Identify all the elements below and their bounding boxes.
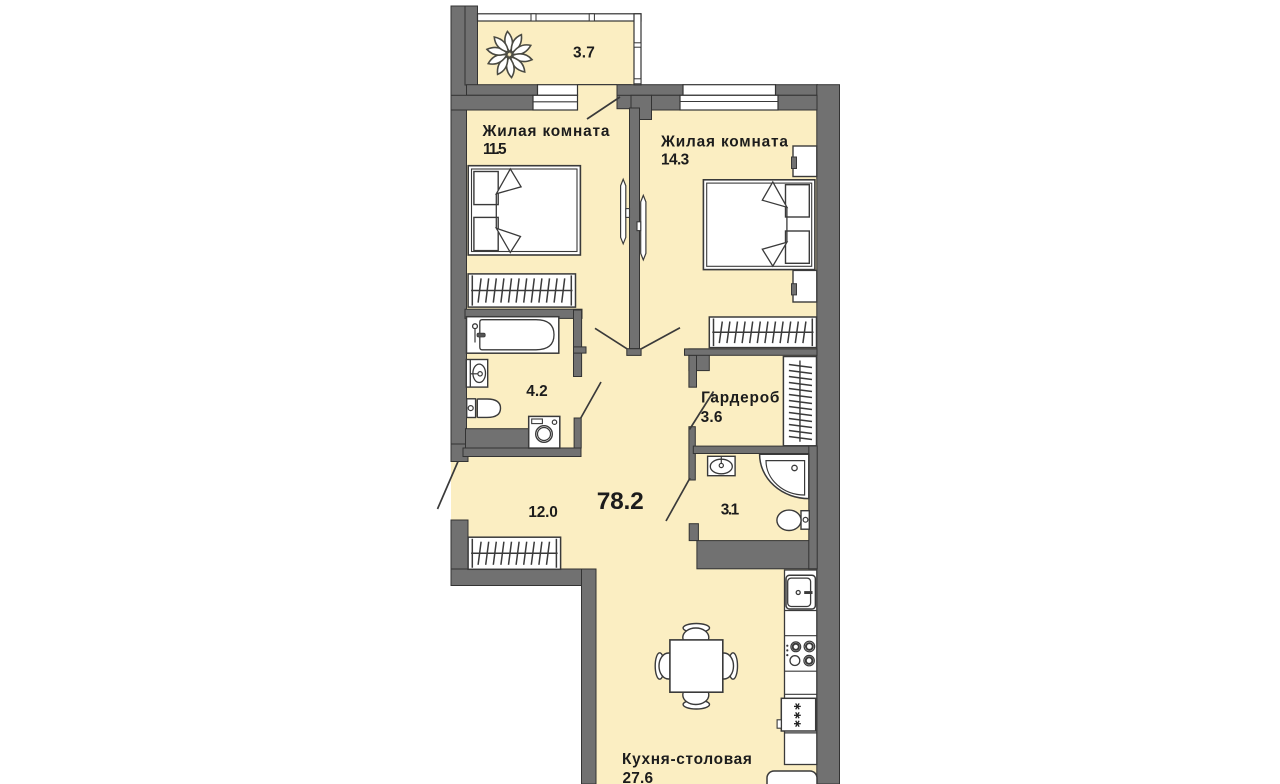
svg-text:Гардероб: Гардероб xyxy=(701,390,780,407)
svg-text:12.0: 12.0 xyxy=(528,504,557,521)
svg-text:27.6: 27.6 xyxy=(623,770,654,784)
svg-text:4.2: 4.2 xyxy=(526,383,547,400)
svg-text:14.3: 14.3 xyxy=(661,151,689,168)
svg-text:11.5: 11.5 xyxy=(483,141,507,158)
svg-text:Жилая комната: Жилая комната xyxy=(482,123,611,140)
svg-text:78.2: 78.2 xyxy=(597,488,644,515)
svg-text:3.7: 3.7 xyxy=(573,44,595,61)
svg-text:3.6: 3.6 xyxy=(701,409,723,426)
svg-text:Кухня-столовая: Кухня-столовая xyxy=(622,751,753,768)
svg-text:Жилая комната: Жилая комната xyxy=(660,133,789,150)
svg-text:3.1: 3.1 xyxy=(721,502,740,519)
